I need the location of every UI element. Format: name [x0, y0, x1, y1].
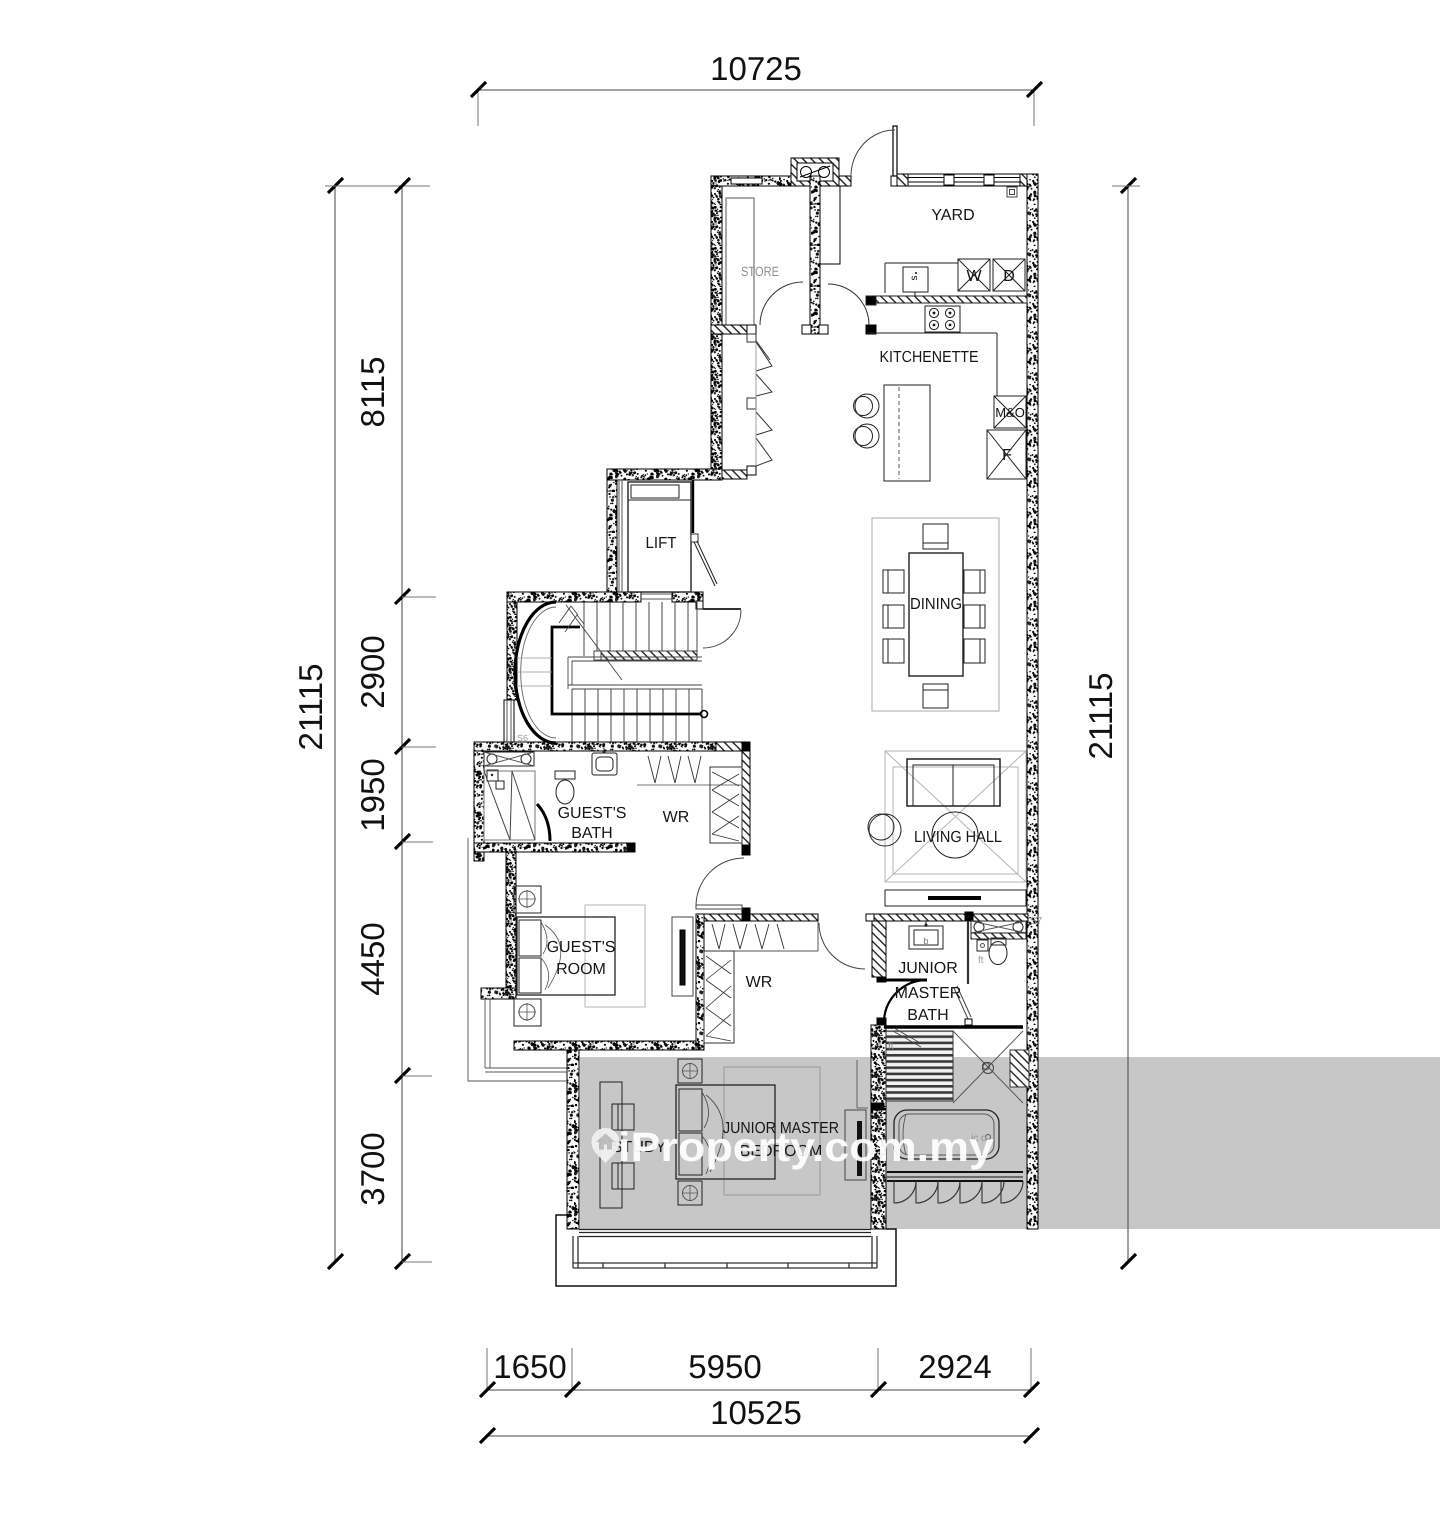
svg-text:GUEST'S: GUEST'S: [558, 805, 627, 822]
svg-text:DINING: DINING: [910, 596, 962, 613]
svg-text:10725: 10725: [710, 50, 802, 87]
svg-text:W: W: [966, 268, 982, 285]
svg-text:s: s: [909, 276, 920, 281]
svg-text:WR: WR: [663, 809, 690, 826]
svg-text:3700: 3700: [354, 1132, 391, 1205]
svg-text:MASTER: MASTER: [895, 985, 962, 1002]
svg-text:21115: 21115: [1082, 673, 1119, 760]
svg-text:21115: 21115: [292, 664, 329, 751]
svg-text:4450: 4450: [354, 922, 391, 995]
svg-text:b: b: [923, 936, 928, 946]
svg-text:ft: ft: [978, 955, 984, 966]
svg-text:BATH: BATH: [571, 825, 612, 842]
svg-text:STORE: STORE: [741, 264, 779, 279]
svg-text:S6: S6: [517, 733, 528, 743]
svg-text:ft: ft: [888, 1041, 894, 1052]
svg-text:WR: WR: [746, 974, 773, 991]
svg-text:JUNIOR: JUNIOR: [898, 960, 958, 977]
svg-text:LIFT: LIFT: [646, 535, 677, 552]
svg-text:8115: 8115: [354, 357, 391, 428]
svg-text:GUEST'S: GUEST'S: [547, 939, 616, 956]
svg-text:D: D: [1003, 268, 1015, 285]
svg-text:1650: 1650: [493, 1348, 566, 1385]
svg-text:LIVING HALL: LIVING HALL: [914, 829, 1002, 846]
svg-text:2900: 2900: [354, 635, 391, 708]
svg-text:2924: 2924: [918, 1348, 991, 1385]
svg-text:KITCHENETTE: KITCHENETTE: [880, 349, 979, 366]
svg-text:F: F: [1002, 447, 1012, 464]
svg-text:M&O: M&O: [995, 405, 1025, 420]
svg-text:S7: S7: [1030, 916, 1043, 927]
svg-text:BATH: BATH: [907, 1007, 948, 1024]
svg-text:1950: 1950: [354, 758, 391, 831]
svg-text:10525: 10525: [710, 1394, 802, 1431]
svg-text:ROOM: ROOM: [556, 961, 606, 978]
svg-text:YARD: YARD: [931, 207, 974, 224]
svg-text:5950: 5950: [688, 1348, 761, 1385]
svg-text:iProperty.com.my: iProperty.com.my: [618, 1124, 994, 1170]
